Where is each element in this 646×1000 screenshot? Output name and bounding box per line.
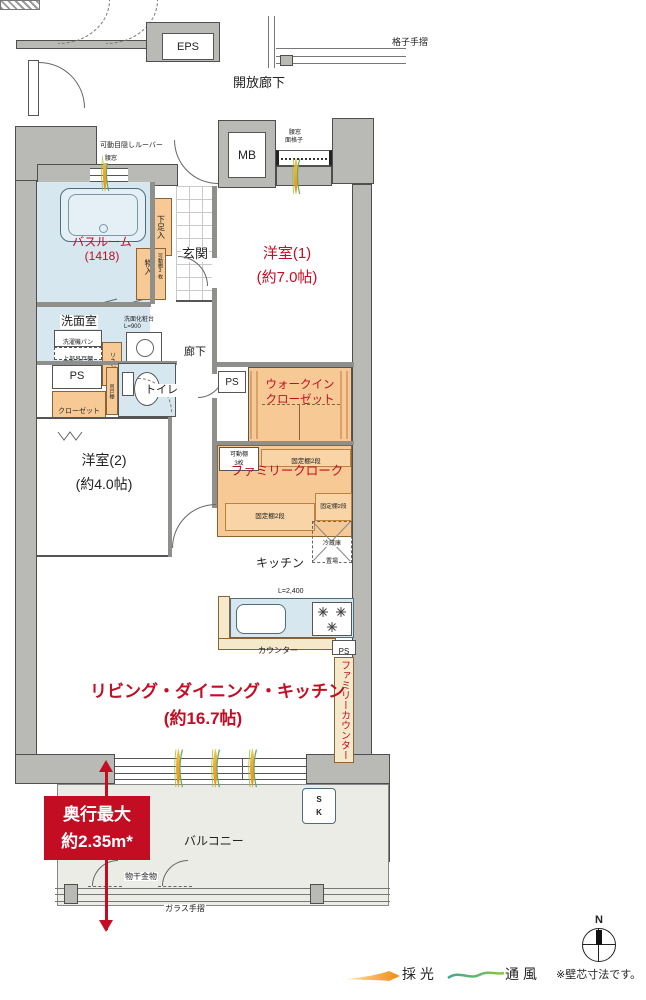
shoe-cabinet-label: 下足入	[156, 215, 167, 239]
porch-wall	[16, 40, 164, 49]
fridge-label-a: 冷蔵庫	[322, 541, 342, 547]
kitchen-length-label: L=2,400	[278, 588, 304, 596]
washroom-label: 洗面室	[60, 315, 98, 329]
handrail-line	[276, 48, 406, 49]
handrail-line	[274, 16, 275, 68]
daylight-legend-icon	[345, 968, 401, 984]
depth-arrow-head-bottom	[99, 920, 113, 932]
drying-fixture-base	[158, 886, 192, 887]
wall-western2-right	[168, 417, 172, 557]
eps-shaft: EPS	[162, 33, 214, 60]
daylight-ventilation-mark	[290, 154, 305, 198]
handrail-post	[310, 884, 324, 904]
daylight-ventilation-mark	[246, 742, 262, 794]
vanity-unit	[126, 332, 162, 362]
floor-plan: EPS 開放廊下 格子手摺 MB 可動目隠しルーバー 腰窓 腰窓 面格子 バスル…	[0, 0, 646, 1000]
fixed-shelf-b-label: 固定棚2段	[255, 513, 285, 520]
bathtub	[60, 188, 146, 242]
wall-right	[352, 184, 372, 758]
wall-bath-genkan	[150, 182, 155, 304]
family-counter: ファミリーカウンター	[334, 657, 354, 763]
handrail-post	[64, 884, 78, 904]
lattice-handrail-label: 格子手摺	[392, 37, 428, 47]
western2-door-arc	[172, 504, 216, 548]
western2-label: 洋室(2) (約4.0帖)	[56, 448, 152, 496]
ldk-label: リビング・ダイニング・キッチン (約16.7帖)	[90, 678, 316, 732]
ps-c-label: PS	[339, 647, 350, 656]
closet-label: クローゼット	[58, 408, 100, 415]
ventilation-legend-label: 通 風	[505, 966, 537, 982]
porch-door-leaf	[28, 60, 39, 116]
family-counter-label: ファミリーカウンター	[337, 660, 352, 760]
balcony-label: バルコニー	[184, 835, 244, 849]
western2-sliding-door	[0, 0, 40, 10]
genkan-step	[176, 300, 214, 302]
ventilation-legend-icon	[447, 966, 505, 984]
ps-shaft-a: PS	[52, 365, 102, 389]
bath-window-label: 腰窓	[104, 156, 118, 163]
mb-label: MB	[238, 148, 256, 162]
fixed-shelf-c-label: 固定棚2段	[320, 504, 346, 510]
fixed-shelf-c: 固定棚2段	[315, 493, 352, 521]
fixed-shelf-b: 固定棚2段	[225, 503, 315, 531]
daylight-ventilation-mark	[209, 742, 225, 794]
wall-left	[15, 180, 37, 760]
handrail-post	[280, 55, 293, 66]
wall-corridor-1	[212, 186, 217, 258]
sk-label-s: S	[303, 789, 335, 807]
porch-door-swing-dashed	[58, 0, 110, 44]
western1-label: 洋室(1) (約7.0帖)	[237, 242, 337, 290]
toilet-label: トイレ	[144, 384, 179, 397]
open-corridor-label: 開放廊下	[233, 76, 285, 91]
compass-north-label: N	[592, 914, 606, 927]
glass-handrail-label: ガラス手摺	[164, 904, 206, 913]
mb-window-label-b: 面格子	[284, 138, 304, 145]
wic-label: ウォークイン クローゼット	[254, 378, 346, 408]
counter-label: カウンター	[258, 646, 298, 655]
ps-shaft-b: PS	[218, 371, 246, 393]
ps-b-label: PS	[225, 377, 238, 388]
closet-bifold-door	[56, 430, 84, 442]
wall-top-right-block	[332, 118, 374, 184]
washer-pan-label: 洗濯機パン	[63, 340, 93, 346]
mb-shaft: MB	[228, 132, 266, 178]
hanging-cabinet-label: 吊戸棚	[109, 384, 116, 399]
compass	[582, 928, 616, 962]
family-cloak-label: ファミリークローク	[228, 464, 346, 478]
toilet-tank	[122, 372, 134, 396]
louver-label: 可動目隠しルーバー	[100, 142, 163, 150]
movable-shelf-label-a: 可動棚	[220, 448, 258, 460]
sk-label-k: K	[303, 807, 335, 818]
entry-door-arc	[174, 140, 218, 184]
handrail-line	[268, 16, 269, 68]
washer-pan: 洗濯機パン	[54, 330, 102, 347]
fridge-space: 冷蔵庫 置場	[312, 521, 352, 563]
bathroom-label: バスルーム (1418)	[58, 236, 146, 264]
mono-ire-note: 可動棚3枚	[157, 253, 164, 279]
corridor-label: 廊下	[184, 346, 206, 359]
daylight-legend-label: 採 光	[402, 966, 434, 982]
kitchen-sink	[236, 604, 286, 634]
eps-label: EPS	[177, 41, 199, 53]
wall-core-note: ※壁芯寸法です。	[556, 969, 641, 982]
kitchen-stove	[312, 602, 352, 636]
ps-shaft-c: PS	[332, 640, 356, 655]
hanging-cabinet: 吊戸棚	[106, 367, 118, 415]
mb-window-label-a: 腰窓	[288, 130, 302, 137]
compass-needle	[596, 930, 602, 945]
slop-sink: S K	[302, 788, 336, 824]
depth-arrow-head-top	[99, 760, 113, 772]
daylight-ventilation-mark	[172, 742, 188, 794]
porch-door-arc	[39, 62, 85, 108]
handrail-line	[276, 56, 406, 57]
upper-cabinet: 上部吊戸棚	[54, 347, 102, 360]
wic-divider	[299, 404, 300, 440]
vanity-label: 洗面化粧台 L=900	[124, 317, 154, 331]
fridge-label-b: 置場	[325, 559, 339, 565]
ps-a-label: PS	[70, 370, 85, 382]
handrail-line	[276, 63, 406, 64]
depth-callout: 奥行最大 約2.35m*	[44, 796, 150, 860]
drying-fixture-label: 物干金物	[124, 872, 158, 881]
kitchen-label: キッチン	[256, 557, 304, 571]
